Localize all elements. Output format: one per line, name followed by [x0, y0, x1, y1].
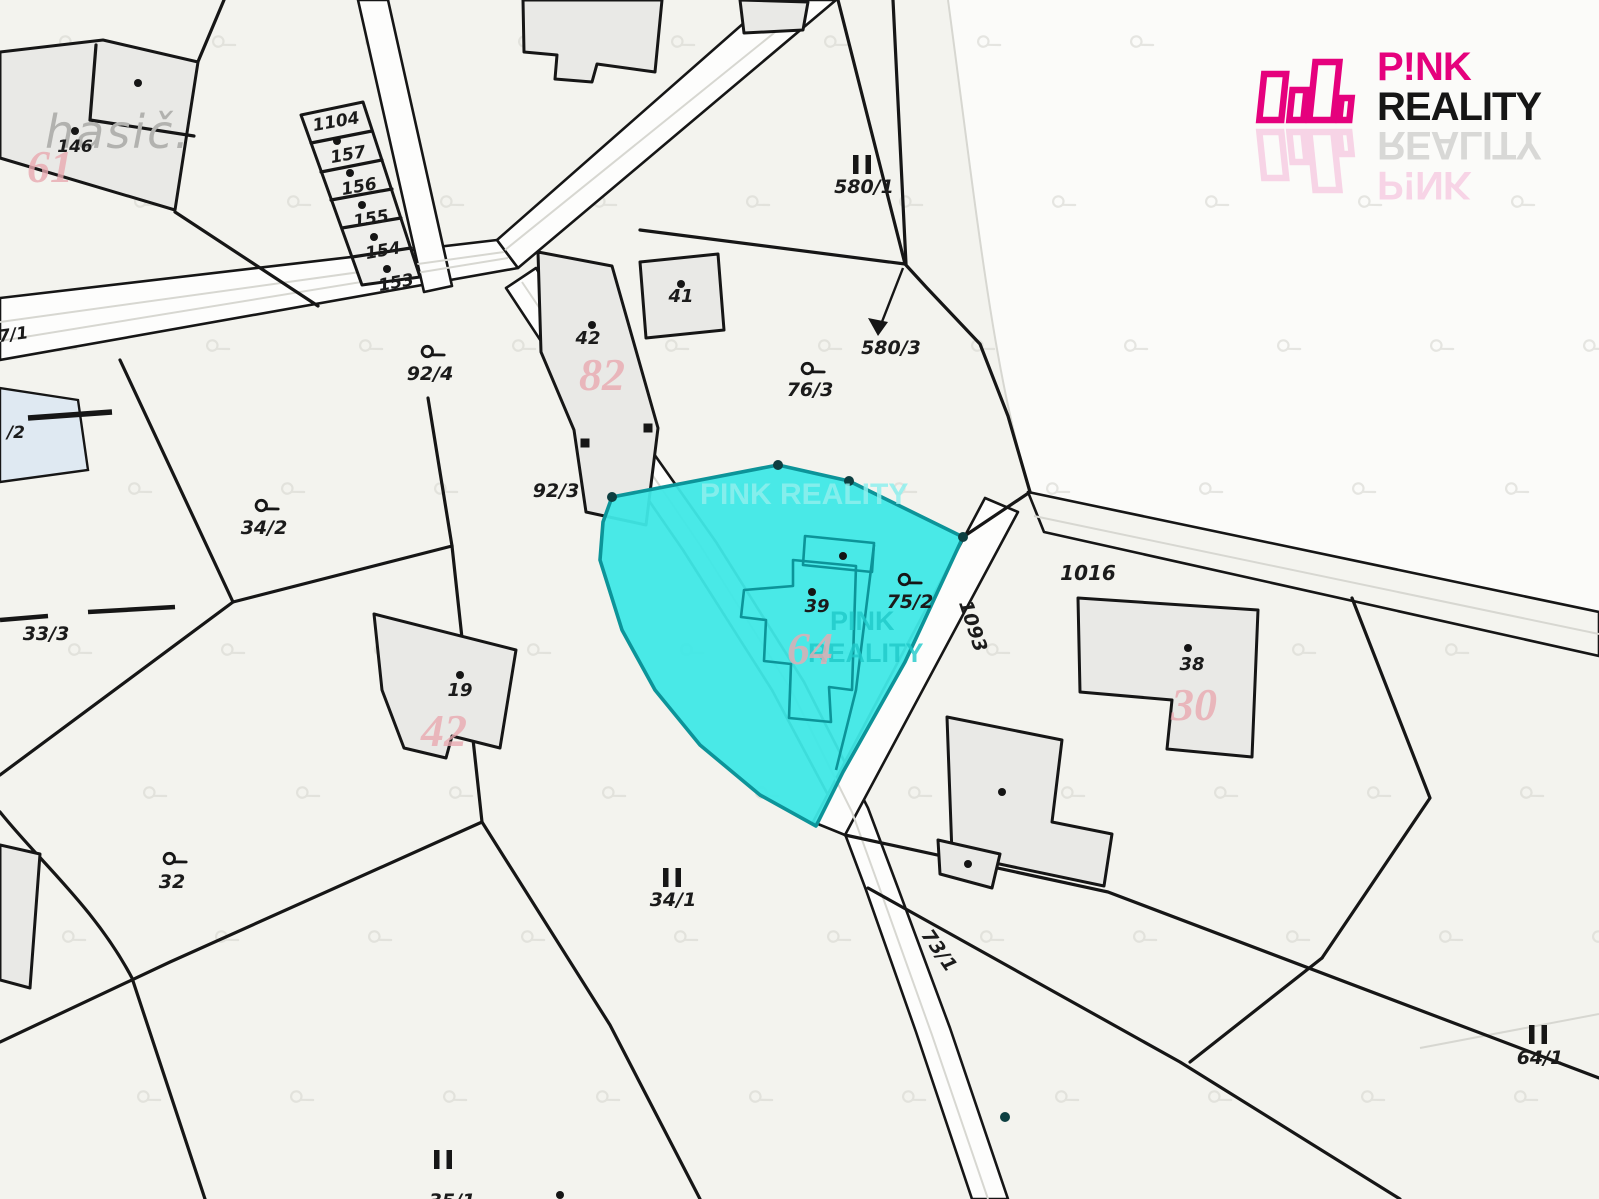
- house-number-label: 30: [1170, 679, 1217, 730]
- vertex-dot: [773, 460, 783, 470]
- parcel-label: 580/3: [861, 337, 921, 359]
- watermark-text: PINK: [830, 606, 895, 636]
- parcel-label: 35/1: [429, 1190, 476, 1199]
- vertex-dot: [958, 532, 968, 542]
- ii-symbol: [1529, 1025, 1535, 1044]
- logo-reality-text: REALITY: [1377, 85, 1542, 129]
- vertex-square: [644, 424, 653, 433]
- house-number-label: 64: [787, 623, 833, 674]
- ii-symbol: [853, 155, 859, 174]
- parcel-label: 92/4: [407, 363, 454, 385]
- vertex-dot: [1000, 1112, 1010, 1122]
- ii-symbol: [434, 1150, 440, 1169]
- parcel-label: 34/2: [241, 517, 288, 539]
- vertex-square: [581, 439, 590, 448]
- building-dot: [998, 788, 1006, 796]
- parcel-label: 1016: [1060, 561, 1116, 585]
- ii-symbol: [447, 1150, 453, 1169]
- building-dot: [839, 552, 847, 560]
- parcel-label: 42: [574, 328, 600, 349]
- parcel-label: 146: [57, 137, 93, 157]
- building-dot: [456, 671, 464, 679]
- parcel-label: 38: [1179, 654, 1204, 675]
- watermark-text: PINK REALITY: [700, 478, 908, 511]
- house-number-label: 42: [420, 705, 467, 756]
- parcel-label: /2: [5, 423, 25, 443]
- building-dot: [1184, 644, 1192, 652]
- ii-symbol: [663, 868, 669, 887]
- building-dot: [134, 79, 142, 87]
- building-dot: [370, 233, 378, 241]
- ii-symbol: [866, 155, 872, 174]
- parcel-label: 34/1: [650, 889, 697, 911]
- building-dot: [358, 201, 366, 209]
- parcel-label: 7/1: [0, 323, 29, 347]
- parcel-label: 580/1: [834, 176, 894, 198]
- vertex-dot: [607, 492, 617, 502]
- building-dot: [556, 1191, 564, 1199]
- building-top-small: [740, 0, 808, 33]
- parcel-label: 32: [159, 871, 185, 893]
- parcel-label: 75/2: [887, 591, 934, 613]
- cadastral-map: PINK REALITYPINKREALITYhasič.61824264301…: [0, 0, 1599, 1199]
- building-dot: [383, 265, 391, 273]
- logo-pink-text: P!NK: [1377, 45, 1472, 89]
- ii-symbol: [676, 868, 682, 887]
- ii-symbol: [1542, 1025, 1548, 1044]
- map-canvas: PINK REALITYPINKREALITYhasič.61824264301…: [0, 0, 1599, 1199]
- building-dot: [964, 860, 972, 868]
- building-dot: [808, 588, 816, 596]
- building-dot: [346, 169, 354, 177]
- building-dot: [333, 137, 341, 145]
- parcel-label: 64/1: [1517, 1047, 1564, 1069]
- parcel-label: 76/3: [787, 379, 834, 401]
- parcel-label: 33/3: [23, 623, 70, 645]
- parcel-label: 19: [447, 680, 472, 701]
- parcel-label: 39: [804, 596, 829, 617]
- house-number-label: 82: [579, 349, 625, 400]
- parcel-label: 41: [667, 286, 693, 307]
- parcel-label: 92/3: [533, 480, 580, 502]
